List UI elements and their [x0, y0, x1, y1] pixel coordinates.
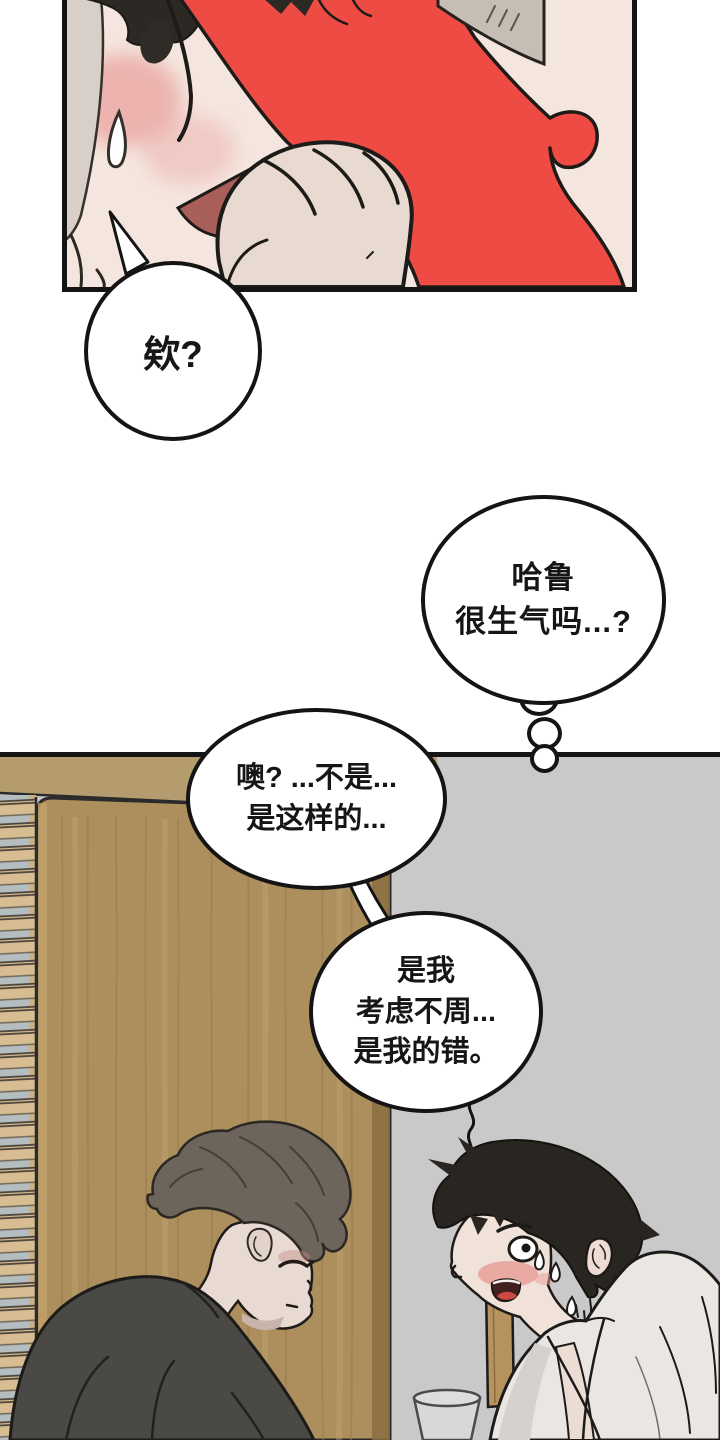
speech-bubble-3: 是我 考虑不周... 是我的错。 — [309, 911, 543, 1113]
bubble2-line-2: 是这样的... — [246, 799, 386, 840]
comic-page: 欸? 哈鲁 很生气吗...? 噢? ...不是... 是这样的... 是我 考虑… — [0, 0, 720, 1440]
bubble3-line-1: 是我 — [397, 951, 455, 992]
speech-bubble-1: 欸? — [84, 261, 262, 441]
speech-bubble-2: 噢? ...不是... 是这样的... — [186, 708, 447, 890]
right-eye — [509, 1237, 537, 1261]
bubble3-line-2: 考虑不周... — [356, 992, 496, 1033]
thought-line-1: 哈鲁 — [512, 556, 576, 600]
bubble1-text: 欸? — [143, 324, 203, 378]
thought-bubble: 哈鲁 很生气吗...? — [421, 495, 666, 705]
thought-trail-circle-2 — [530, 744, 559, 773]
right-mouth-open — [492, 1279, 520, 1301]
thought-line-2: 很生气吗...? — [455, 600, 632, 644]
window-blinds — [0, 795, 36, 1440]
bubble2-line-1: 噢? ...不是... — [236, 758, 397, 799]
drinking-glass — [414, 1390, 480, 1440]
bubble3-line-3: 是我的错。 — [353, 1032, 498, 1073]
